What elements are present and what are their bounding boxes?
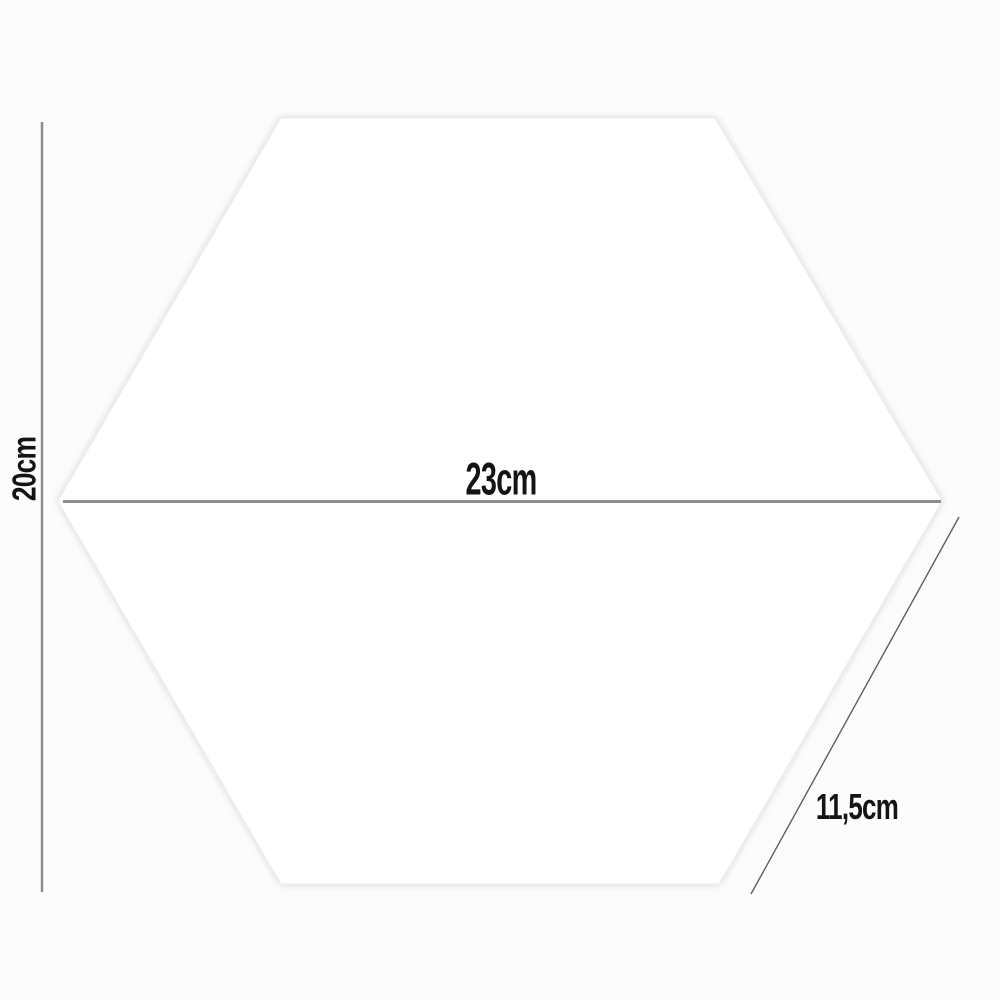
- side-dimension-label: 11,5cm: [816, 789, 898, 825]
- width-dimension-label: 23cm: [465, 457, 536, 502]
- hexagon-dimension-diagram: 20cm 23cm 11,5cm: [0, 0, 1000, 1000]
- height-dimension-label: 20cm: [8, 437, 41, 501]
